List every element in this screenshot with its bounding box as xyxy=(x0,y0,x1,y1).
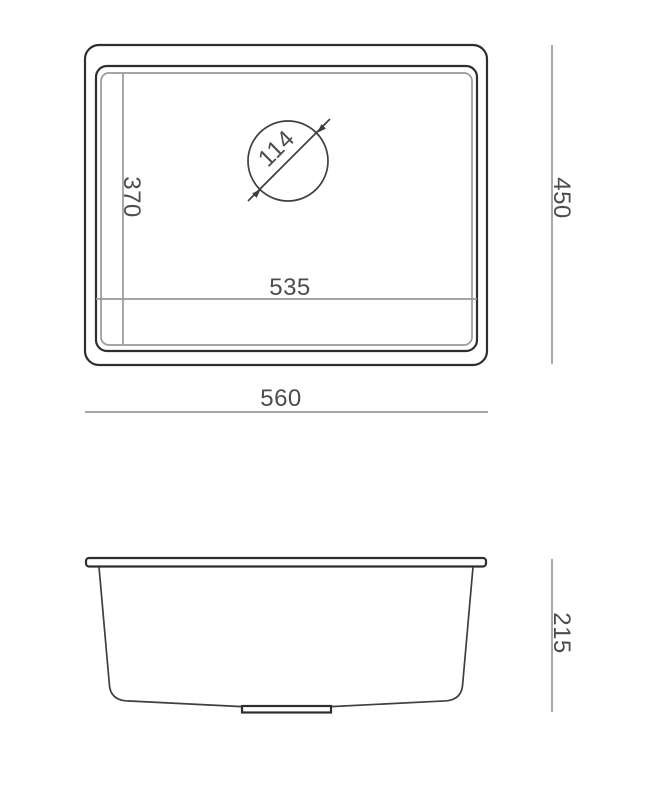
dimension-label-side-height: 215 xyxy=(548,612,575,654)
top-view-bowl-rim-inner xyxy=(101,73,472,345)
side-view-left-wall xyxy=(99,567,242,707)
overall-depth-dimension: 450 xyxy=(548,45,575,364)
side-height-dimension: 215 xyxy=(548,559,575,712)
side-view-rim xyxy=(86,558,486,567)
top-view-bowl-rim-outer xyxy=(96,66,477,351)
dimension-label-bowl-depth: 370 xyxy=(118,176,145,218)
side-view xyxy=(86,558,486,713)
dimension-label-overall-depth: 450 xyxy=(548,177,575,219)
side-view-drain-flange xyxy=(242,706,331,713)
dimension-label-overall-width: 560 xyxy=(260,385,302,412)
dimension-label-bowl-width: 535 xyxy=(269,274,311,301)
sink-technical-drawing: 114 370 535 450 560 215 xyxy=(0,0,646,800)
side-view-right-wall xyxy=(331,567,473,707)
overall-width-dimension: 560 xyxy=(85,385,488,412)
drawing-svg: 114 370 535 450 560 215 xyxy=(0,0,646,800)
top-view: 114 370 535 xyxy=(85,45,487,365)
